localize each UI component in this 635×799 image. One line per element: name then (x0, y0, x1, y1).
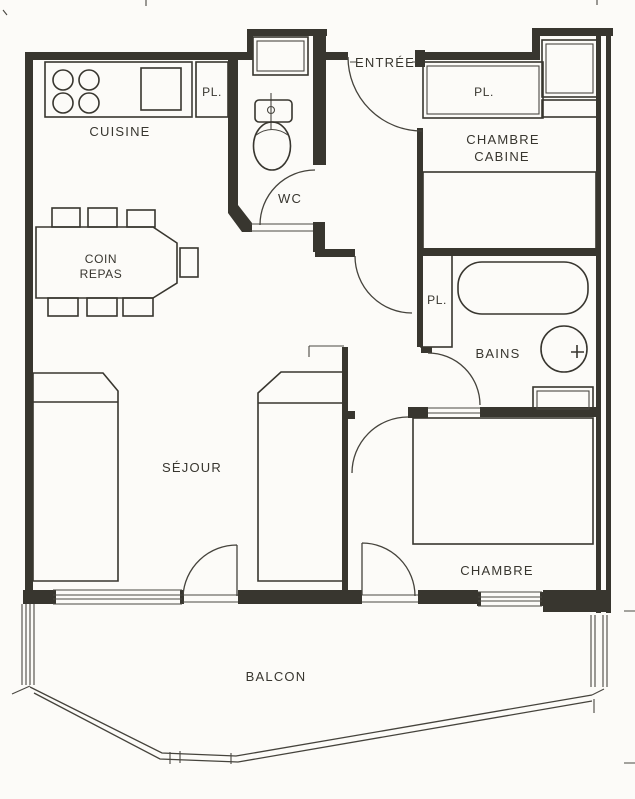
wc-fixtures (254, 93, 293, 170)
sejour-balcony-door (183, 545, 237, 596)
wc-angled-wall (228, 205, 252, 232)
room-label-balcon: BALCON (246, 669, 307, 684)
closet-label-kitchen: PL. (202, 85, 222, 99)
sejour-bed-left (33, 373, 118, 581)
balcony-railing-outer (30, 687, 592, 756)
stove-burner-icon (53, 70, 73, 90)
room-label-cuisine: CUISINE (89, 124, 150, 139)
dining-chair (48, 298, 78, 316)
balcony-railing-inner (34, 693, 592, 762)
bains-door-arc (428, 353, 480, 405)
corner-wardrobe-inner (546, 44, 593, 93)
floor-plan-page: ENTRÉE CUISINE PL. PL. WC CHAMBRE CABINE… (0, 0, 635, 799)
washbasin-faucet-cross-icon (571, 345, 584, 358)
room-label-coin-repas-line1: COIN (85, 252, 117, 266)
dining-chair (127, 210, 155, 227)
room-label-sejour: SÉJOUR (162, 460, 222, 475)
toilet-seat-line (256, 130, 288, 136)
walls (23, 28, 613, 613)
room-label-coin-repas-line2: REPAS (80, 267, 123, 281)
floor-plan-drawing: ENTRÉE CUISINE PL. PL. WC CHAMBRE CABINE… (0, 0, 635, 799)
washbasin (541, 326, 587, 372)
chambre-bed (413, 418, 593, 544)
bed-nook-partition (309, 346, 344, 357)
chambre-door-arc (352, 417, 408, 473)
wardrobe-shelf (542, 100, 597, 117)
bains-cabinet-inner (537, 391, 589, 409)
bathtub (458, 262, 588, 314)
hall-sejour-door-arc (355, 256, 412, 313)
stove-burner-icon (79, 93, 99, 113)
toilet-tank (255, 100, 292, 122)
sejour-bed-middle (258, 372, 343, 581)
kitchen-fixtures (45, 37, 308, 117)
room-label-entree: ENTRÉE (355, 55, 415, 70)
dining-chair (88, 208, 117, 227)
bed-fixtures (33, 372, 593, 581)
balcony-railing-posts (12, 686, 604, 764)
chambre-balcony-door (362, 543, 415, 596)
dining-chair (52, 208, 80, 227)
bains-fixtures (421, 251, 593, 413)
cabine-bed (423, 172, 596, 250)
dining-chair (180, 248, 198, 277)
exterior-and-interior-walls (23, 28, 613, 613)
dining-chair (87, 298, 117, 316)
stove-burner-icon (53, 93, 73, 113)
balcony-left-wall-hatch (22, 604, 34, 685)
room-label-wc: WC (278, 191, 302, 206)
room-label-bains: BAINS (475, 346, 520, 361)
room-label-chambre-cabine-line1: CHAMBRE (466, 132, 539, 147)
water-heater-inner (257, 41, 304, 71)
room-label-chambre-cabine-line2: CABINE (474, 149, 530, 164)
corner-wardrobe (542, 40, 597, 97)
balcony-right-wall-hatch (591, 615, 607, 687)
room-label-chambre: CHAMBRE (460, 563, 533, 578)
kitchen-sink (141, 68, 181, 110)
doors (183, 57, 480, 596)
water-heater (253, 37, 308, 75)
dining-chair (123, 298, 153, 316)
stove-burner-icon (79, 70, 99, 90)
closet-label-bains: PL. (427, 293, 447, 307)
closet-label-cabine: PL. (474, 85, 494, 99)
